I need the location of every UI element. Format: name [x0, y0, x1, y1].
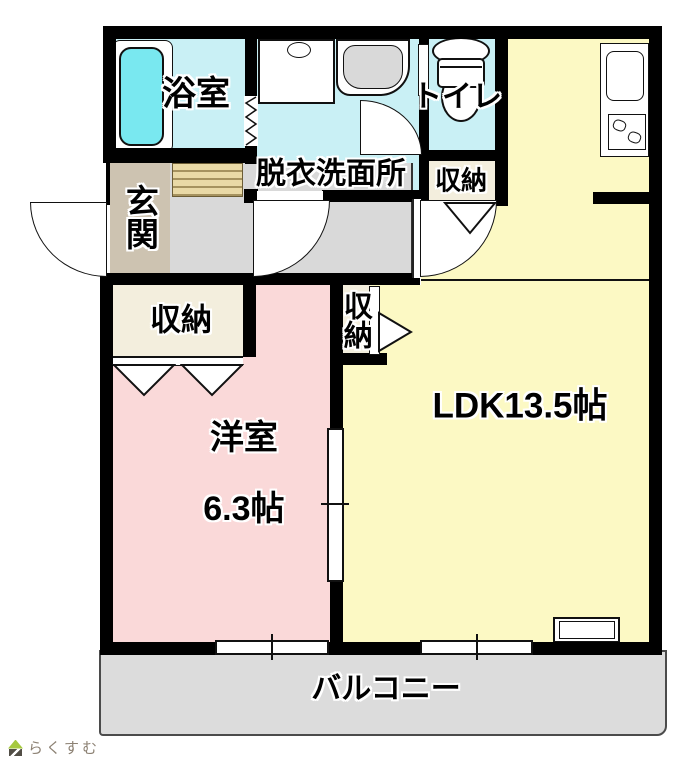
- kitchen-stove: [608, 114, 646, 150]
- wall-bath-wash-upper: [245, 26, 257, 100]
- label-balcony: バルコニー: [311, 673, 460, 705]
- label-western-room: 洋室 6.3帖: [165, 385, 284, 563]
- kitchen-sink: [606, 51, 644, 101]
- label-ldk: LDK13.5帖: [432, 389, 607, 426]
- wall-right: [649, 26, 662, 655]
- window-tick-west-ldk: [321, 503, 349, 505]
- wall-toilet-bottom: [419, 150, 508, 161]
- toilet-seat-line: [440, 66, 482, 68]
- wall-bath-bottom: [103, 148, 257, 163]
- floor-plan: 浴室 脱衣洗面所 トイレ 収納 玄関 収納 収納 洋室 6.3帖 LDK13.5…: [0, 0, 699, 766]
- wall-wash-bottom: [322, 190, 420, 202]
- entrance-step: [172, 163, 243, 197]
- label-storage-hall: 収納: [340, 291, 370, 349]
- label-western-room-size: 6.3帖: [203, 490, 284, 528]
- window-west-ldk: [327, 428, 344, 582]
- label-bathroom: 浴室: [162, 77, 230, 113]
- wall-stub-right: [593, 192, 662, 204]
- rakusumu-logo: らくすむ: [8, 737, 100, 758]
- label-washroom: 脱衣洗面所: [256, 158, 406, 190]
- vanity-bowl: [343, 45, 403, 89]
- label-storage-west: 収納: [150, 305, 212, 338]
- logo-house-icon: [8, 740, 23, 756]
- window-tick-west-balcony: [271, 634, 273, 660]
- bathtub: [119, 47, 164, 146]
- wall-storage-west-right: [243, 285, 256, 357]
- label-storage-toilet: 収納: [435, 167, 487, 194]
- wall-left-entrance: [106, 161, 110, 205]
- accordion-door-bathroom: [244, 96, 258, 146]
- wall-left-lower: [100, 277, 113, 655]
- ldk-counter-inner: [559, 621, 615, 639]
- wall-left-upper: [103, 26, 116, 163]
- logo-text: らくすむ: [28, 737, 100, 758]
- ldk-boundary-line: [421, 279, 649, 281]
- window-tick-ldk-balcony: [476, 634, 478, 660]
- wall-bottom: [100, 642, 662, 655]
- folding-door-storage-toilet: [443, 201, 497, 235]
- entrance-door-arc: [30, 202, 107, 277]
- wall-toilet-ldk: [495, 26, 508, 206]
- label-toilet: トイレ: [412, 81, 502, 113]
- label-entrance: 玄関: [122, 184, 157, 250]
- wall-wash-toilet-upper: [419, 26, 429, 46]
- label-western-room-name: 洋室: [210, 418, 278, 456]
- washer-drain-icon: [287, 42, 311, 58]
- wall-top: [103, 26, 662, 39]
- folding-door-storage-hall: [377, 311, 413, 353]
